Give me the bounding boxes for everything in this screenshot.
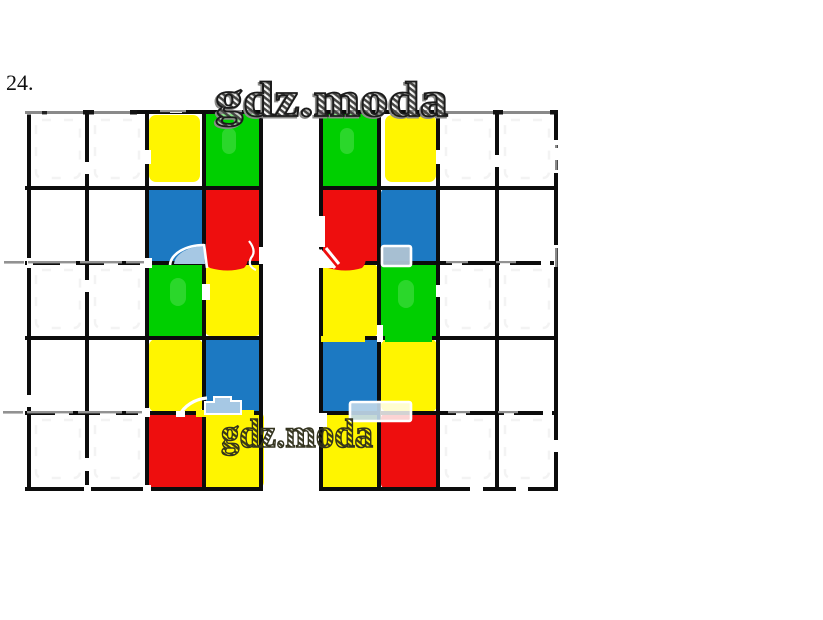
svg-text:gdz.moda: gdz.moda — [221, 411, 373, 456]
svg-text:24.: 24. — [6, 70, 34, 95]
svg-text:gdz.moda: gdz.moda — [215, 71, 448, 127]
